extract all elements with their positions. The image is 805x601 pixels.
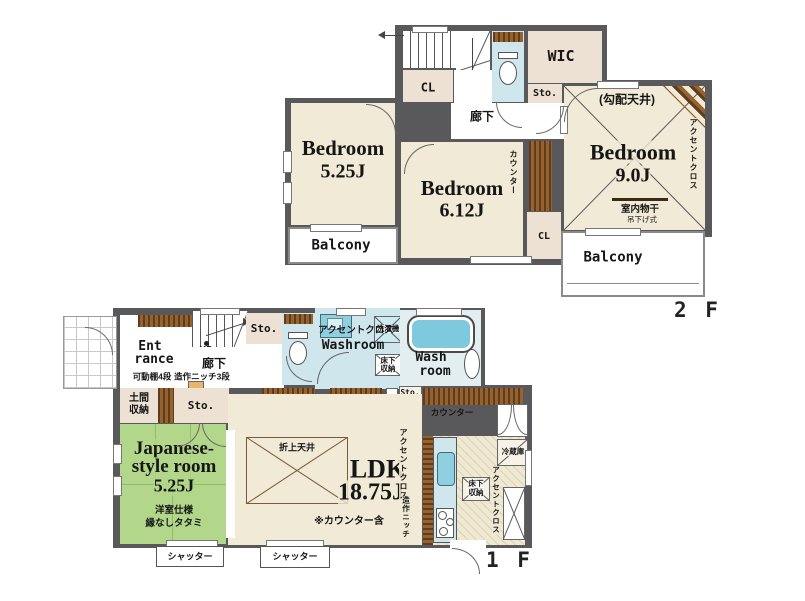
bedroom-612-size: 6.12J [440,201,485,222]
japanese-room-size: 5.25J [154,477,195,496]
stairs-2f-arrow-line [384,35,404,36]
counter-right-label: カウンター [431,409,474,418]
hanging-type-label: 吊下げ式 [627,216,657,224]
washroom-label: Washroom [322,339,385,353]
floor-plan: DN CL Sto. WIC 廊下 Bedroom 5.25J Bedroom … [0,0,805,601]
bedroom-525-size: 5.25J [321,162,366,183]
floor-2f-label: 2 F [674,298,721,322]
bath-door-icon [464,349,480,379]
window [412,26,448,33]
window [336,308,366,316]
balcony-left-label: Balcony [311,239,370,254]
window [283,182,292,204]
niche-b-label: 造作ニッチ [402,496,410,539]
bedroom-525-name: Bedroom [302,137,384,159]
shelf-a-label: 可動棚4段 [133,373,172,382]
stairs-2f-arrow-head [378,31,385,39]
sliding-door [226,430,235,538]
accent-ldk-label: アクセントクロス [399,428,407,500]
window [283,151,292,173]
fridge-label: 冷蔵庫 [502,448,525,456]
toilet-shelf-2f [493,32,523,42]
bedroom-90-size: 9.0J [616,166,651,187]
stairs-2f [402,31,460,68]
corridor-1f-b [240,344,282,388]
counter-right [423,388,523,405]
counter-note-label: ※カウンター含 [314,517,384,528]
underfloor-kitchen-label-2: 収納 [469,489,484,497]
wic-label: WIC [547,49,574,65]
stairs-2f-dn-line [472,38,473,74]
window [200,308,240,315]
toilet-shelf-1f [284,314,313,324]
toilet-icon [288,332,308,339]
accent-wash-label: アクセントクロス [318,326,394,336]
stove-burner [446,518,454,526]
stove-burner [438,511,447,520]
entrance-label-2: rance [134,353,173,367]
coffered-label: 折上天井 [277,443,317,452]
bedroom-90-name: Bedroom [590,140,676,163]
tatami-note-1: 洋室仕様 [155,506,193,516]
window [310,224,362,232]
doma-shelf [158,388,174,423]
door-opening [450,540,486,548]
window [470,256,532,264]
shutter-right-label: シャッター [272,552,317,561]
bedroom-612-name: Bedroom [421,177,503,199]
window [416,308,462,316]
counter-2f [529,141,552,211]
stairs-1f [192,311,236,347]
cl-upper-label: CL [421,82,435,95]
bathroom-label-1: Wash [415,351,446,365]
doma-label-1: 土間 [129,394,149,405]
bathtub-icon [407,315,475,353]
ldk-size: 18.75J [338,480,404,505]
sto-mid-label: Sto. [188,400,215,412]
sto-2f-label: Sto. [533,89,557,100]
floor-1f-label: 1 F [486,548,533,572]
underfloor-kitchen-label-1: 床下 [469,480,484,488]
window [113,476,122,496]
pantry-cross [503,487,525,540]
accent-kitchen-label: アクセントクロス [492,466,500,534]
balcony-right-label: Balcony [583,251,642,266]
balcony-right-rail [567,283,699,284]
window [585,228,641,236]
japanese-room-name-2: style room [132,457,217,477]
corridor-1f-label: 廊下 [202,358,226,371]
indoor-drying-label: 室内物干 [621,205,659,215]
entrance-shelf [138,315,192,327]
sink-icon [437,452,455,486]
corridor-2f-upper [454,70,492,105]
doma-label-2: 収納 [129,406,149,417]
toilet-bowl-icon [499,61,517,85]
window [525,450,532,486]
bedroom-90-accent-label: アクセントクロス [689,118,697,190]
tatami-note-2: 縁なしタタミ [145,519,202,529]
sloped-ceiling-note: (勾配天井) [597,94,657,107]
door-arc [452,548,480,574]
bathroom-label-2: room [419,365,450,379]
corridor-2f-label: 廊下 [470,111,494,124]
window [597,81,639,89]
toilet-icon [498,52,518,59]
underfloor-wash-label-2: 収納 [381,365,396,373]
window [113,444,122,464]
sto-top-label: Sto. [251,323,278,335]
counter-2f-label: カウンター [509,150,517,195]
shutter-left-label: シャッター [167,552,212,561]
drying-bar-icon [612,198,668,201]
cl-lower-label: CL [538,232,550,243]
kitchen-side-panel [423,436,433,545]
stove-burner [439,527,448,536]
